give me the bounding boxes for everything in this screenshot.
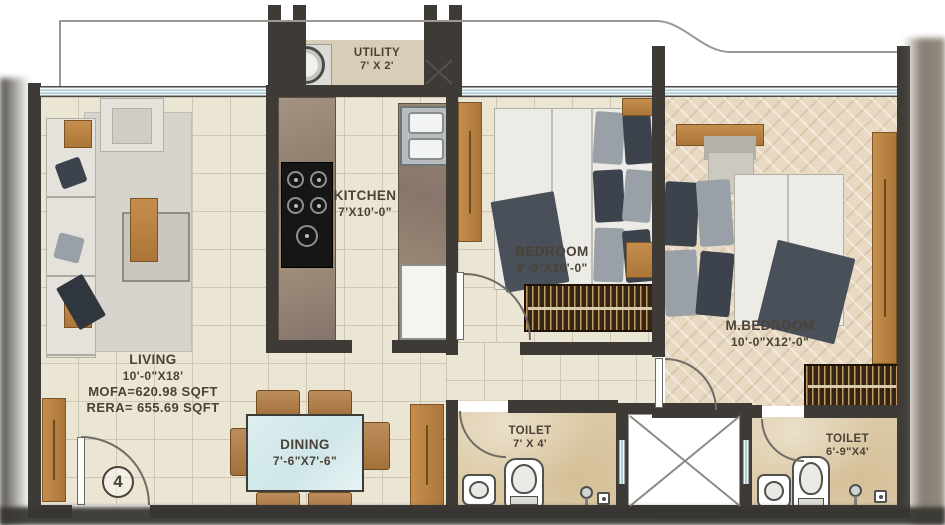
- kitchen-sink: [400, 106, 452, 166]
- window-living: [40, 86, 266, 97]
- toilet-1-label-block: TOILET 7' X 4': [480, 424, 580, 452]
- bedroom-wardrobe: [524, 284, 656, 332]
- shaft-duct: [628, 414, 740, 508]
- wall-toilet-1-top: [508, 400, 618, 413]
- side-table: [64, 120, 92, 148]
- bed-pillow: [622, 113, 653, 165]
- nightstand: [622, 98, 656, 116]
- photo-blur-bottom: [0, 507, 945, 525]
- tower-notch: [281, 5, 293, 21]
- utility-label-block: UTILITY 7' X 2': [332, 46, 422, 74]
- washbasin-icon: [757, 474, 791, 508]
- wall-kitchen-bottom-left: [266, 340, 352, 353]
- floor-drain-icon: [874, 490, 887, 503]
- dining-chair: [362, 422, 390, 470]
- living-dims: 10'-0"X18': [48, 369, 258, 384]
- mbed-pillow: [662, 181, 699, 247]
- living-mofa: MOFA=620.98 SQFT: [48, 384, 258, 400]
- photo-blur-left: [0, 78, 30, 525]
- bedroom-label: BEDROOM: [492, 244, 612, 261]
- toilet-2-dims: 6'-9"X4': [795, 446, 900, 460]
- living-rera: RERA= 655.69 SQFT: [48, 400, 258, 416]
- mbed-pillow: [695, 251, 734, 318]
- dining-table: DINING 7'-6"X7'-6": [246, 414, 364, 492]
- kitchen-cabinet: [400, 264, 452, 340]
- mbedroom-wardrobe-panel: [872, 132, 897, 364]
- mbedroom-label-block: M.BEDROOM 10'-0"X12'-0": [700, 318, 840, 350]
- utility-label: UTILITY: [332, 46, 422, 60]
- wall-kitchen-bottom-right: [392, 340, 458, 353]
- mbedroom-dims: 10'-0"X12'-0": [700, 335, 840, 350]
- unit-number: 4: [113, 472, 122, 492]
- wall-kitchen-left: [266, 97, 278, 342]
- mbedroom-label: M.BEDROOM: [700, 318, 840, 335]
- shaft-vent-left: [618, 440, 626, 484]
- toilet-wc-icon: [504, 458, 544, 510]
- bed-pillow: [593, 169, 626, 222]
- toilet-1-door-threshold: [458, 401, 508, 412]
- mbed-pillow: [696, 179, 735, 247]
- shaft-vent-right: [742, 440, 750, 484]
- mbed-pillow: [662, 249, 699, 317]
- toilet-1-dims: 7' X 4': [480, 438, 580, 452]
- wall-mbed-bottom-left: [652, 405, 762, 418]
- bed-pillow: [592, 111, 626, 165]
- passage-cabinet: [410, 404, 444, 506]
- bedroom-wardrobe-panel: [458, 102, 482, 242]
- mbedroom-door-leaf: [655, 358, 663, 408]
- toilet-wc-icon: [792, 456, 830, 512]
- unit-number-badge: 4: [102, 466, 134, 498]
- washbasin-icon: [462, 474, 496, 506]
- bedroom-door-leaf: [456, 272, 464, 340]
- utility-dims: 7' X 2': [332, 60, 422, 74]
- kitchen-dims: 7'X10'-0": [310, 205, 420, 220]
- entrance-door-leaf: [77, 437, 85, 505]
- kitchen-label-block: KITCHEN 7'X10'-0": [310, 188, 420, 220]
- bedroom-label-block: BEDROOM 9'-0"X10'-0": [492, 244, 612, 276]
- mbedroom-wardrobe: [804, 364, 900, 408]
- window-mbedroom: [665, 86, 897, 97]
- kitchen-label: KITCHEN: [310, 188, 420, 205]
- photo-blur-right: [903, 38, 945, 525]
- wall-post-mid: [652, 46, 665, 97]
- coffee-table: [130, 198, 158, 262]
- dining-dims: 7'-6"X7'-6": [248, 454, 362, 469]
- toilet-1-label: TOILET: [480, 424, 580, 438]
- window-bedroom: [462, 86, 652, 97]
- floor-drain-icon: [597, 492, 610, 505]
- bedroom-dims: 9'-0"X10'-0": [492, 261, 612, 276]
- wall-bedroom-bottom: [520, 342, 655, 355]
- toilet-2-label: TOILET: [795, 432, 900, 446]
- bed-pillow: [622, 169, 654, 223]
- armchair-cushion: [112, 108, 152, 144]
- wall-mbed-bottom-right: [804, 405, 910, 418]
- tower-notch: [437, 5, 449, 21]
- toilet-2-door-threshold: [762, 406, 804, 417]
- toilet-2-label-block: TOILET 6'-9"X4': [795, 432, 900, 460]
- living-label-block: LIVING 10'-0"X18' MOFA=620.98 SQFT RERA=…: [48, 352, 258, 416]
- living-label: LIVING: [48, 352, 258, 369]
- floor-plan: DINING 7'-6"X7'-6": [0, 0, 945, 525]
- dining-label: DINING: [248, 437, 362, 454]
- wall-bedroom-mbedroom: [652, 97, 665, 357]
- boundary-line: [60, 21, 897, 86]
- wall-toilet-1-left: [446, 400, 458, 518]
